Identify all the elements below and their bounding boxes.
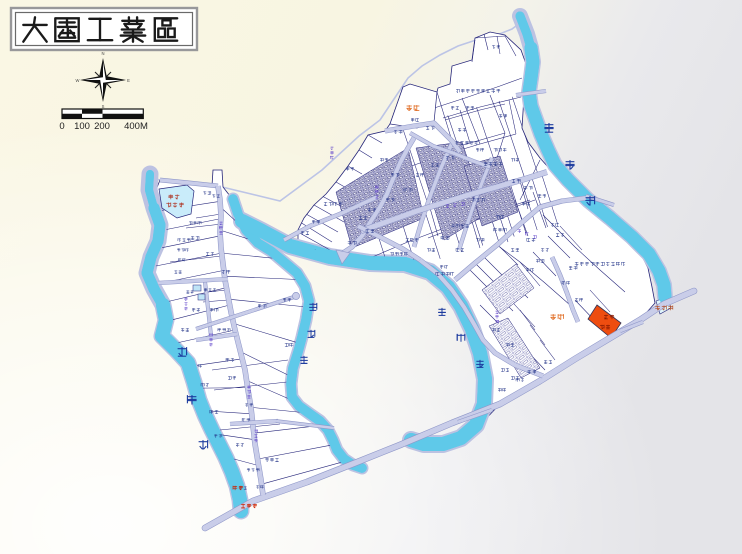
svg-text:W: W <box>76 78 80 83</box>
svg-text:N: N <box>101 51 104 56</box>
svg-text:E: E <box>127 78 130 83</box>
svg-text:0: 0 <box>59 121 64 132</box>
svg-text:400M: 400M <box>124 121 148 132</box>
svg-text:S: S <box>102 104 105 109</box>
svg-text:200: 200 <box>94 121 110 132</box>
svg-text:100: 100 <box>74 121 90 132</box>
